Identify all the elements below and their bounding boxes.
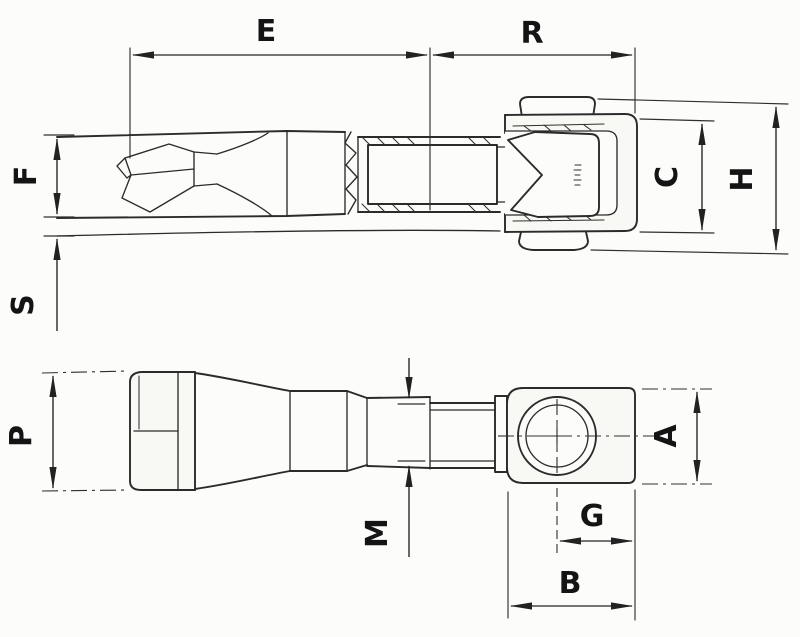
dim-label-a: A <box>649 424 684 448</box>
pin-nut <box>519 232 588 250</box>
side-view: E R F S C H <box>6 14 788 331</box>
dim-R: R <box>433 16 635 113</box>
dim-S: S <box>6 236 74 331</box>
dimension-drawing: E R F S C H <box>0 0 800 637</box>
dim-C: C <box>640 119 714 233</box>
plan-view: P M A G B <box>4 358 712 620</box>
cable-splice-detail <box>117 133 272 216</box>
dim-label-c: C <box>650 166 685 188</box>
dim-label-s: S <box>6 294 41 316</box>
dim-P: P <box>4 371 128 491</box>
clamp-block <box>130 372 195 490</box>
dim-label-m: M <box>360 518 395 548</box>
eye-end <box>498 388 664 483</box>
dim-E: E <box>130 14 430 210</box>
technical-drawing-page: E R F S C H <box>0 0 800 637</box>
dim-label-h: H <box>725 166 760 191</box>
swaged-sleeve <box>57 131 500 236</box>
dim-B: B <box>508 492 632 618</box>
dim-label-g: G <box>580 499 605 534</box>
clevis-fork <box>505 97 637 250</box>
dim-label-r: R <box>520 16 543 51</box>
dim-label-p: P <box>4 425 39 447</box>
dim-F: F <box>9 135 74 217</box>
dim-label-b: B <box>559 566 582 601</box>
dim-A: A <box>642 389 712 484</box>
threaded-stub <box>430 396 507 472</box>
tapered-shaft <box>195 373 430 489</box>
threaded-sleeve <box>345 132 512 214</box>
dim-label-f: F <box>9 166 44 187</box>
dim-label-e: E <box>256 14 277 49</box>
dim-M: M <box>360 358 425 557</box>
